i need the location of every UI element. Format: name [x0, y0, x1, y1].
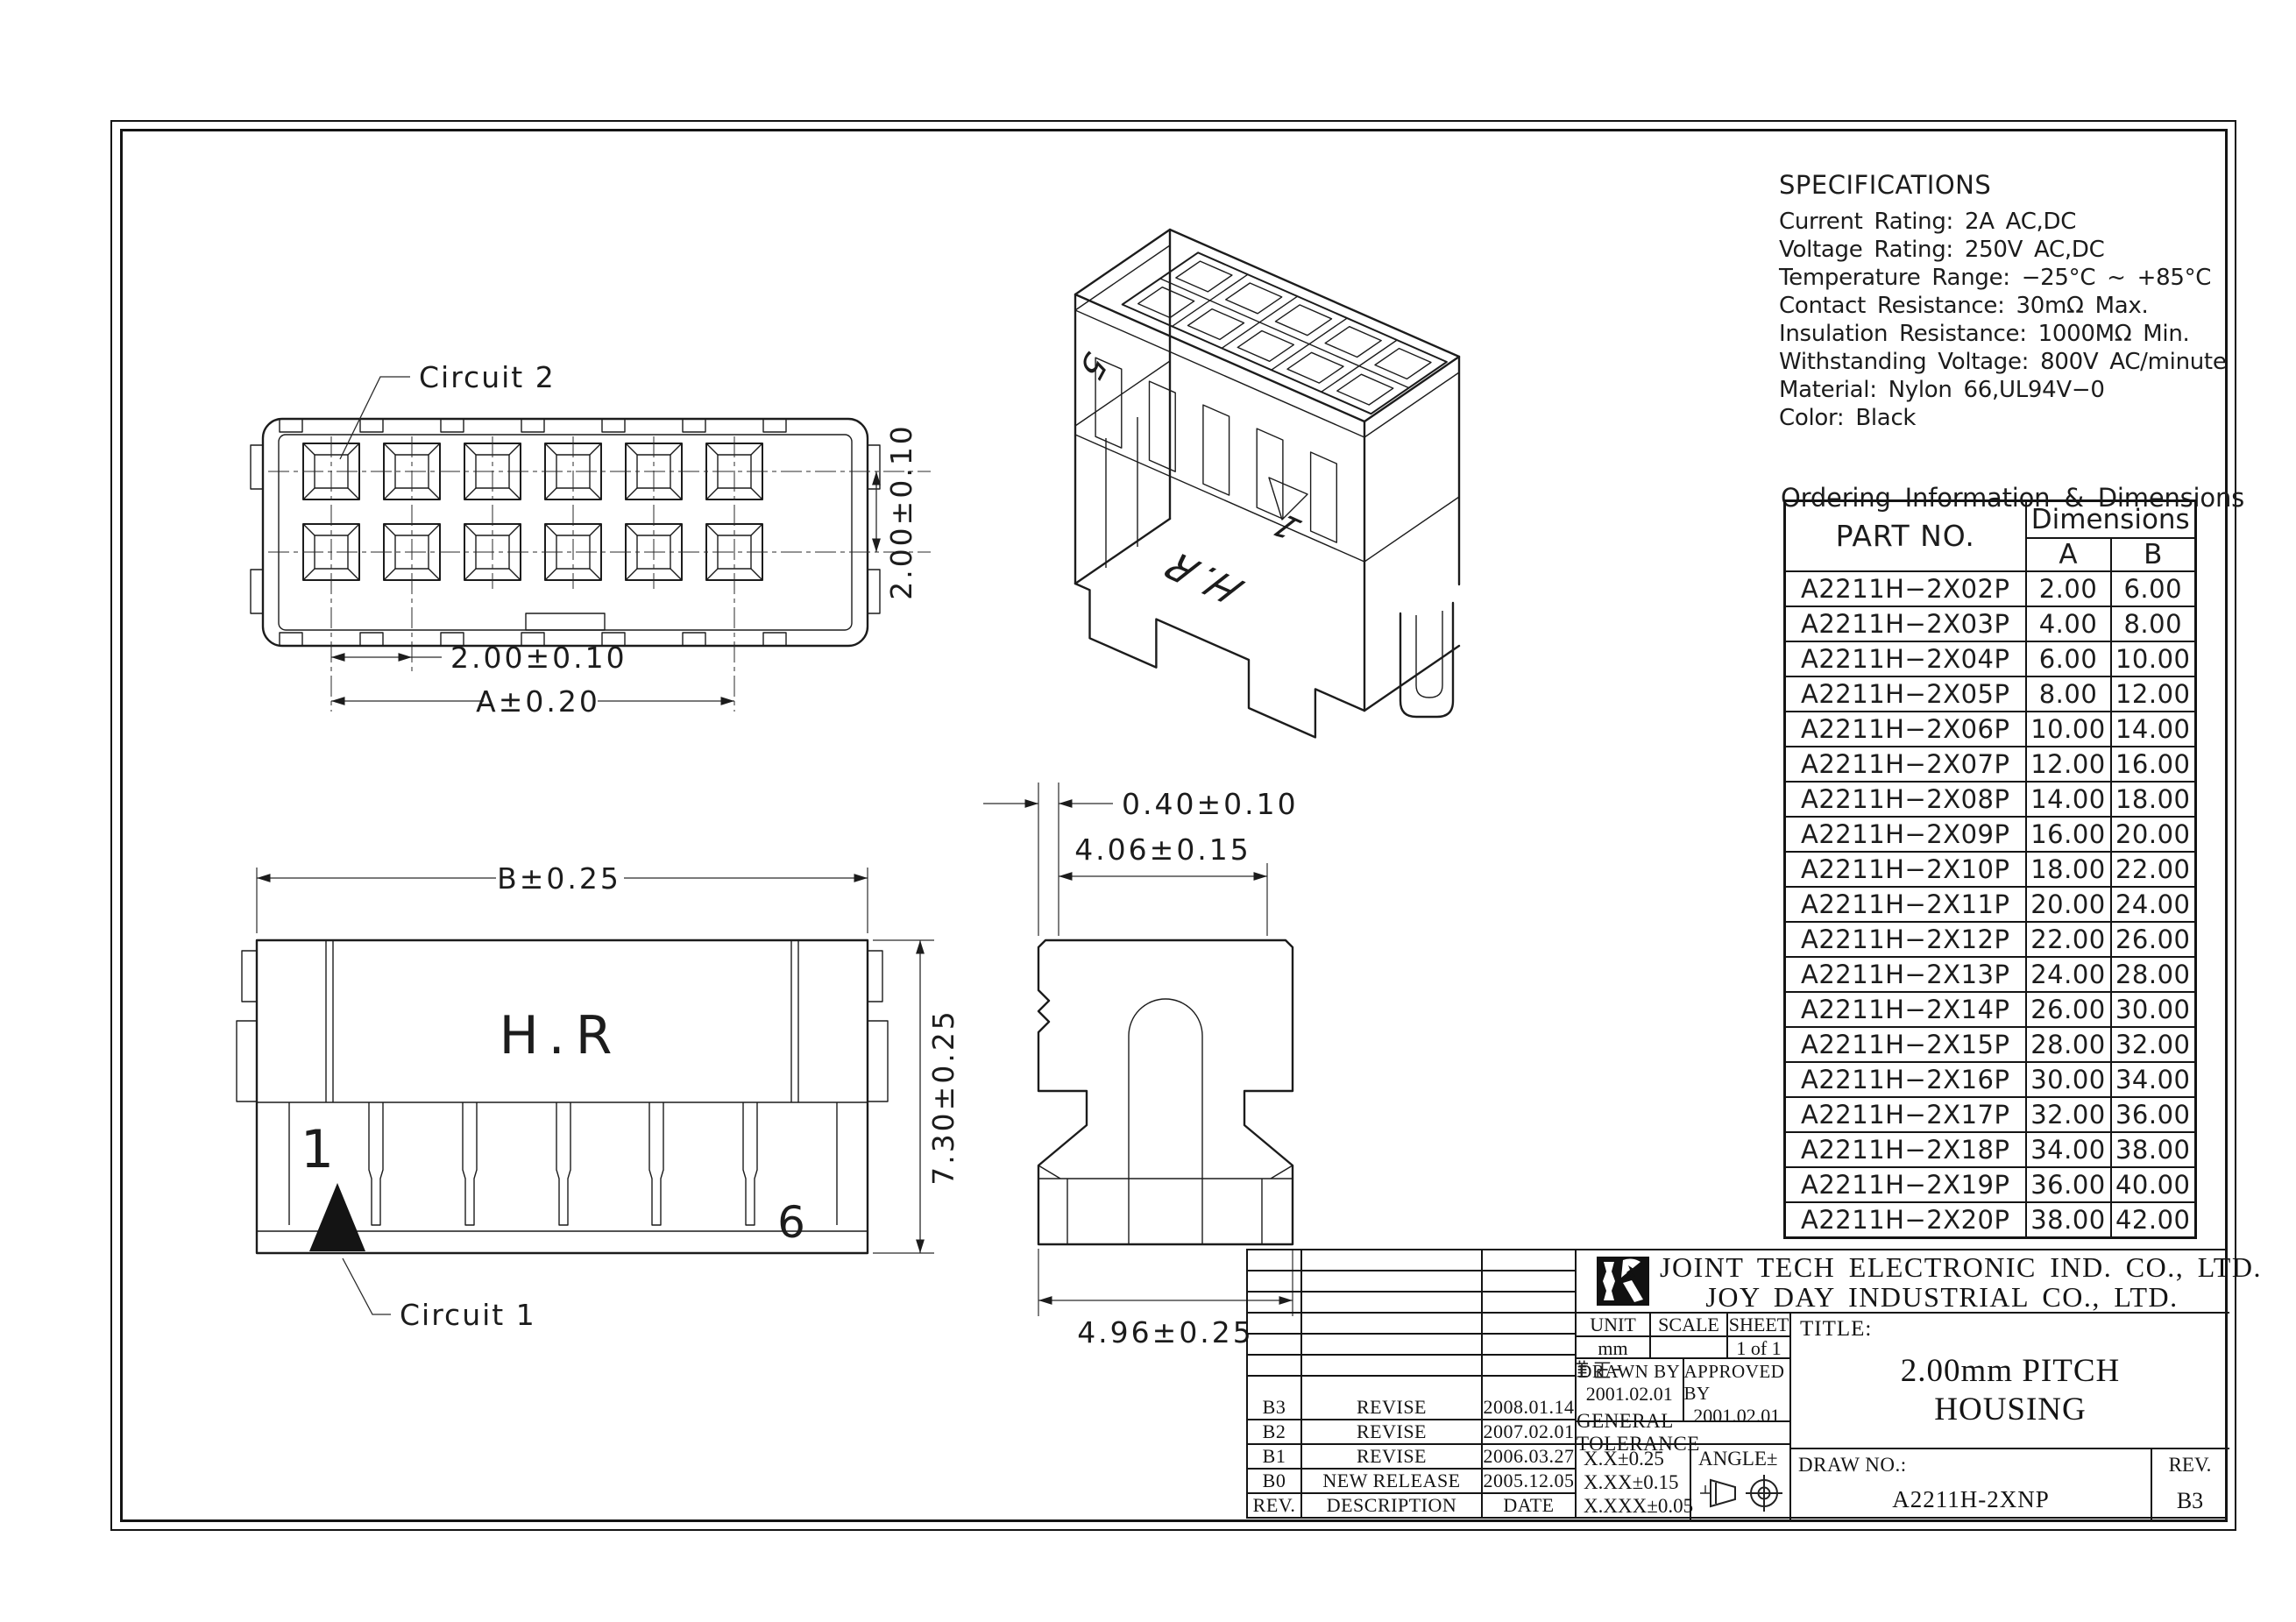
revision-header-row: REV. DESCRIPTION DATE [1248, 1492, 1575, 1517]
part-number: A2211H−2X13P [1785, 957, 2026, 992]
part-number: A2211H−2X06P [1785, 712, 2026, 747]
angle-tolerance-label: ANGLE± [1691, 1445, 1789, 1470]
title-section: TITLE: 2.00mm PITCH HOUSING DRAW NO.: A2… [1789, 1314, 2229, 1520]
part-row: A2211H−2X06P 10.00 14.00 [1785, 712, 2196, 747]
iso-view: 5 H.R 1 [1074, 230, 1459, 737]
revision-description: REVISE [1302, 1420, 1483, 1443]
tolerance-area: X.X±0.25 X.XX±0.15 X.XXX±0.05 ANGLE± [1577, 1445, 1789, 1520]
revision-row: B0 NEW RELEASE 2005.12.05 [1248, 1468, 1575, 1492]
dim-b-value: 40.00 [2111, 1167, 2196, 1202]
title-label: TITLE: [1800, 1317, 1872, 1342]
col-header-b: B [2111, 538, 2196, 571]
dim-b-value: 6.00 [2111, 571, 2196, 606]
unit-value: mm [1577, 1337, 1649, 1360]
drawing-title-line2: HOUSING [1791, 1391, 2229, 1429]
part-number: A2211H−2X07P [1785, 747, 2026, 782]
part-row: A2211H−2X14P 26.00 30.00 [1785, 992, 2196, 1027]
projection-symbols [1697, 1473, 1793, 1513]
dim-a-value: 24.00 [2026, 957, 2111, 992]
part-number: A2211H−2X19P [1785, 1167, 2026, 1202]
part-number: A2211H−2X03P [1785, 606, 2026, 641]
side-pos6-label: 6 [777, 1197, 805, 1248]
dim-lip: 0.40±0.10 [1122, 787, 1299, 821]
rev-label: REV. [2151, 1454, 2229, 1477]
dim-height: 7.30±0.25 [926, 1009, 960, 1186]
dim-a-value: 30.00 [2026, 1062, 2111, 1097]
dim-b-value: 42.00 [2111, 1202, 2196, 1238]
part-row: A2211H−2X12P 22.00 26.00 [1785, 922, 2196, 957]
spec-line: Voltage Rating: 250V AC,DC [1779, 236, 2235, 264]
part-number: A2211H−2X02P [1785, 571, 2026, 606]
part-row: A2211H−2X17P 32.00 36.00 [1785, 1097, 2196, 1132]
revision-date: 2006.03.27 [1483, 1445, 1575, 1468]
side-brand-label: H.R [500, 1005, 623, 1066]
part-row: A2211H−2X13P 24.00 28.00 [1785, 957, 2196, 992]
dim-b-value: 28.00 [2111, 957, 2196, 992]
part-number: A2211H−2X18P [1785, 1132, 2026, 1167]
part-row: A2211H−2X04P 6.00 10.00 [1785, 641, 2196, 676]
tolerance-1: X.X±0.25 [1584, 1447, 1690, 1470]
third-angle-projection-icon [1711, 1480, 1735, 1506]
description-col-header: DESCRIPTION [1302, 1494, 1483, 1517]
circuit1-label: Circuit 1 [400, 1298, 536, 1332]
sheet-label: SHEET [1728, 1314, 1789, 1337]
company-name-1: JOINT TECH ELECTRONIC IND. CO., LTD. [1660, 1252, 2224, 1282]
dim-a-value: 8.00 [2026, 676, 2111, 712]
part-number: A2211H−2X05P [1785, 676, 2026, 712]
dim-a-value: 38.00 [2026, 1202, 2111, 1238]
iso-pos5-label: 5 [1074, 342, 1111, 390]
dim-b-value: 32.00 [2111, 1027, 2196, 1062]
dim-b-value: 16.00 [2111, 747, 2196, 782]
specifications-lines: Current Rating: 2A AC,DCVoltage Rating: … [1779, 208, 2235, 432]
part-row: A2211H−2X09P 16.00 20.00 [1785, 817, 2196, 852]
revision-table: B3 REVISE 2008.01.14 B2 REVISE 2007.02.0… [1248, 1250, 1577, 1517]
col-header-part-no: PART NO. [1785, 501, 2026, 571]
part-row: A2211H−2X10P 18.00 22.00 [1785, 852, 2196, 887]
part-row: A2211H−2X20P 38.00 42.00 [1785, 1202, 2196, 1238]
dim-a-value: 2.00 [2026, 571, 2111, 606]
spec-line: Material: Nylon 66,UL94V−0 [1779, 376, 2235, 404]
dim-a-value: 10.00 [2026, 712, 2111, 747]
part-number: A2211H−2X09P [1785, 817, 2026, 852]
part-row: A2211H−2X03P 4.00 8.00 [1785, 606, 2196, 641]
dim-outer: 4.96±0.25 [1077, 1315, 1254, 1349]
part-number: A2211H−2X16P [1785, 1062, 2026, 1097]
revision-row: B1 REVISE 2006.03.27 [1248, 1443, 1575, 1468]
dim-b-value: 18.00 [2111, 782, 2196, 817]
unit-scale-sheet: UNIT mm SCALE SHEET 1 of 1 [1577, 1314, 1789, 1359]
revision-description: NEW RELEASE [1302, 1470, 1483, 1492]
part-row: A2211H−2X18P 34.00 38.00 [1785, 1132, 2196, 1167]
part-row: A2211H−2X08P 14.00 18.00 [1785, 782, 2196, 817]
dim-b-value: 24.00 [2111, 887, 2196, 922]
revision-row: B3 REVISE 2008.01.14 [1248, 1396, 1575, 1419]
dim-b-value: 10.00 [2111, 641, 2196, 676]
ordering-table: PART NO. Dimensions A B A2211H−2X02P 2.0… [1783, 499, 2197, 1239]
col-header-dimensions: Dimensions [2026, 501, 2196, 538]
revision-id: B0 [1248, 1470, 1302, 1492]
dim-a-value: 6.00 [2026, 641, 2111, 676]
tolerance-2: X.XX±0.15 [1584, 1470, 1690, 1494]
dim-b-value: 12.00 [2111, 676, 2196, 712]
part-number: A2211H−2X12P [1785, 922, 2026, 957]
dim-a-value: 12.00 [2026, 747, 2111, 782]
drawing-title-line1: 2.00mm PITCH [1791, 1352, 2229, 1391]
spec-line: Color: Black [1779, 404, 2235, 432]
dim-b-value: 34.00 [2111, 1062, 2196, 1097]
rev-col-header: REV. [1248, 1494, 1302, 1517]
revision-description: REVISE [1302, 1396, 1483, 1419]
tolerance-3: X.XXX±0.05 [1584, 1494, 1690, 1518]
general-tolerance-label: GENERAL TOLERANCE [1577, 1422, 1789, 1445]
specifications-block: SPECIFICATIONS Current Rating: 2A AC,DCV… [1779, 170, 2235, 432]
title-block: B3 REVISE 2008.01.14 B2 REVISE 2007.02.0… [1246, 1249, 2228, 1519]
dim-b-value: 38.00 [2111, 1132, 2196, 1167]
dim-b: B±0.25 [497, 861, 621, 896]
dim-a-value: 4.00 [2026, 606, 2111, 641]
part-number: A2211H−2X17P [1785, 1097, 2026, 1132]
part-row: A2211H−2X19P 36.00 40.00 [1785, 1167, 2196, 1202]
dim-b-value: 30.00 [2111, 992, 2196, 1027]
approved-by-stamp [1577, 1359, 1622, 1380]
dim-b-value: 14.00 [2111, 712, 2196, 747]
unit-label: UNIT [1577, 1314, 1649, 1337]
dim-a-value: 32.00 [2026, 1097, 2111, 1132]
part-number: A2211H−2X10P [1785, 852, 2026, 887]
dim-a-value: 20.00 [2026, 887, 2111, 922]
company-band: JOINT TECH ELECTRONIC IND. CO., LTD. JOY… [1577, 1250, 2229, 1314]
side-pos1-label: 1 [301, 1119, 334, 1180]
polarity-mark-triangle [309, 1183, 365, 1251]
revision-description: REVISE [1302, 1445, 1483, 1468]
spec-line: Contact Resistance: 30mΩ Max. [1779, 292, 2235, 320]
part-row: A2211H−2X11P 20.00 24.00 [1785, 887, 2196, 922]
dim-pitch-horizontal: 2.00±0.10 [450, 641, 627, 675]
dim-a-value: 34.00 [2026, 1132, 2111, 1167]
dim-inner: 4.06±0.15 [1074, 832, 1251, 867]
part-row: A2211H−2X05P 8.00 12.00 [1785, 676, 2196, 712]
part-number: A2211H−2X15P [1785, 1027, 2026, 1062]
sheet-value: 1 of 1 [1728, 1337, 1789, 1360]
specifications-title: SPECIFICATIONS [1779, 170, 2235, 200]
spec-line: Current Rating: 2A AC,DC [1779, 208, 2235, 236]
dim-a-value: 14.00 [2026, 782, 2111, 817]
spec-line: Temperature Range: −25°C ~ +85°C [1779, 264, 2235, 292]
part-row: A2211H−2X15P 28.00 32.00 [1785, 1027, 2196, 1062]
dim-a: A±0.20 [476, 684, 600, 719]
col-header-a: A [2026, 538, 2111, 571]
part-number: A2211H−2X08P [1785, 782, 2026, 817]
revision-row: B2 REVISE 2007.02.01 [1248, 1419, 1575, 1443]
dim-a-value: 36.00 [2026, 1167, 2111, 1202]
part-number: A2211H−2X20P [1785, 1202, 2026, 1238]
approved-by-label: APPROVED BY [1684, 1361, 1790, 1405]
dim-a-value: 16.00 [2026, 817, 2111, 852]
drawn-date: 2001.02.01 [1586, 1383, 1673, 1406]
dim-a-value: 28.00 [2026, 1027, 2111, 1062]
spec-line: Withstanding Voltage: 800V AC/minute [1779, 348, 2235, 376]
dim-b-value: 8.00 [2111, 606, 2196, 641]
draw-no-label: DRAW NO.: [1798, 1454, 1907, 1477]
scale-label: SCALE [1651, 1314, 1726, 1337]
dim-b-value: 36.00 [2111, 1097, 2196, 1132]
scale-value [1651, 1337, 1726, 1357]
revision-date: 2005.12.05 [1483, 1470, 1575, 1492]
dim-a-value: 18.00 [2026, 852, 2111, 887]
part-row: A2211H−2X07P 12.00 16.00 [1785, 747, 2196, 782]
part-row: A2211H−2X16P 30.00 34.00 [1785, 1062, 2196, 1097]
revision-date: 2008.01.14 [1483, 1396, 1575, 1419]
draw-no-value: A2211H-2XNP [1791, 1486, 2151, 1513]
revision-id: B2 [1248, 1420, 1302, 1443]
iso-brand-label: H.R [1146, 545, 1258, 608]
circuit2-label: Circuit 2 [419, 360, 556, 394]
dim-b-value: 26.00 [2111, 922, 2196, 957]
part-number: A2211H−2X11P [1785, 887, 2026, 922]
rev-value: B3 [2151, 1488, 2229, 1514]
company-name-2: JOY DAY INDUSTRIAL CO., LTD. [1660, 1282, 2224, 1312]
part-number: A2211H−2X14P [1785, 992, 2026, 1027]
dim-a-value: 26.00 [2026, 992, 2111, 1027]
dim-a-value: 22.00 [2026, 922, 2111, 957]
date-col-header: DATE [1483, 1494, 1575, 1517]
spec-line: Insulation Resistance: 1000MΩ Min. [1779, 320, 2235, 348]
revision-id: B3 [1248, 1396, 1302, 1419]
part-row: A2211H−2X02P 2.00 6.00 [1785, 571, 2196, 606]
dim-b-value: 22.00 [2111, 852, 2196, 887]
dim-b-value: 20.00 [2111, 817, 2196, 852]
part-number: A2211H−2X04P [1785, 641, 2026, 676]
side-view: H.R 1 6 Circuit 1 B±0.25 7.30±0.25 [237, 861, 960, 1332]
revision-id: B1 [1248, 1445, 1302, 1468]
rear-view: 2.00±0.10 A±0.20 2.00±0.10 Circuit 2 [251, 360, 931, 719]
dim-pitch-vertical: 2.00±0.10 [884, 423, 918, 600]
revision-date: 2007.02.01 [1483, 1420, 1575, 1443]
engineering-drawing-sheet: 2.00±0.10 A±0.20 2.00±0.10 Circuit 2 [0, 0, 2296, 1622]
